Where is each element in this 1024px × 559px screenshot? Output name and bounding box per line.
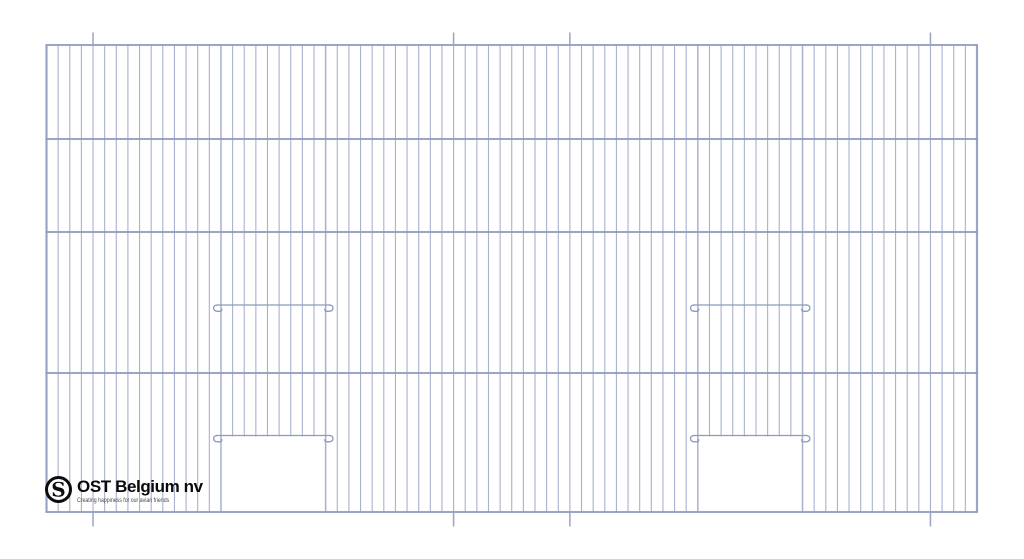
logo: S OST Belgium nv Creating happiness for … xyxy=(45,476,203,504)
logo-ring-icon: S xyxy=(45,476,72,503)
logo-company-name: OST Belgium nv xyxy=(77,478,203,495)
logo-text: OST Belgium nv Creating happiness for ou… xyxy=(77,478,203,504)
logo-monogram: S xyxy=(51,479,65,499)
logo-tagline: Creating happiness for our avian friends xyxy=(77,497,178,504)
cage-front-drawing: S OST Belgium nv Creating happiness for … xyxy=(0,0,1024,559)
